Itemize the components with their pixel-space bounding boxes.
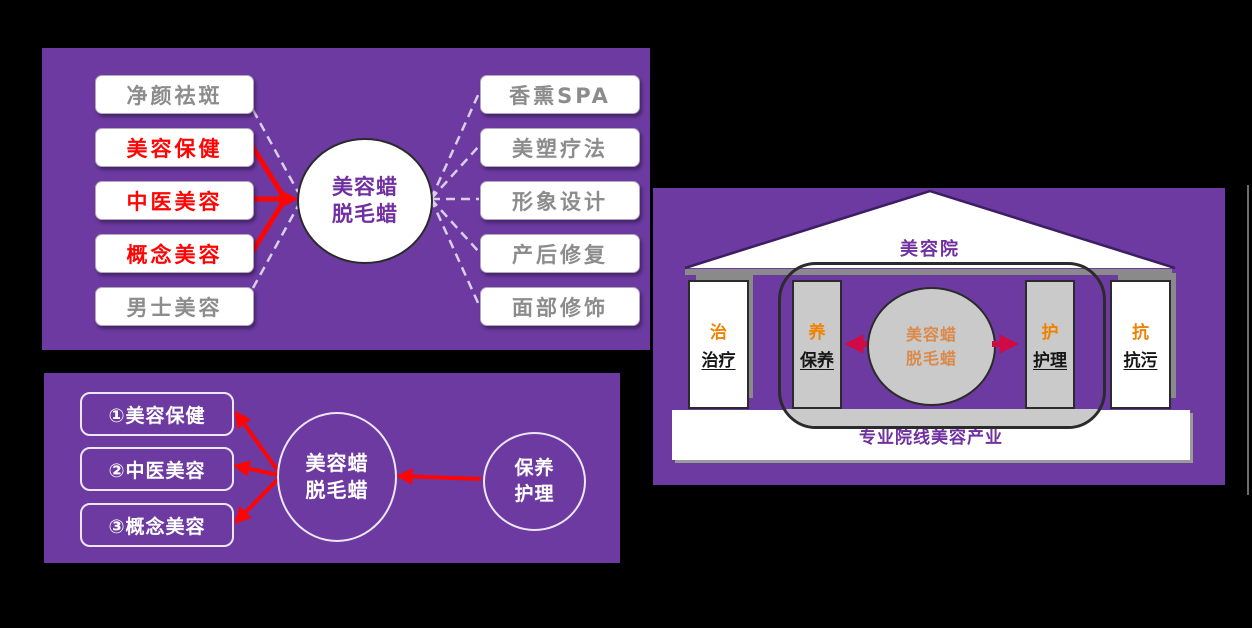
center-node-line2: 脱毛蜡 — [906, 347, 957, 371]
pillar-word: 治疗 — [702, 346, 736, 371]
app-item-nanshimeirong: 男士美容 — [95, 287, 254, 326]
roof-label: 美容院 — [830, 235, 1030, 261]
pillar-antifouling: 抗 抗污 — [1110, 280, 1171, 409]
app-item-chanhou: 产后修复 — [480, 234, 640, 273]
support-node-care: 保养 护理 — [483, 432, 586, 531]
center-node-line2: 脱毛蜡 — [306, 477, 369, 504]
priority-item-2: ②中医美容 — [80, 447, 234, 491]
slide-canvas: 净颜祛斑 美容保健 中医美容 概念美容 男士美容 美容蜡 脱毛蜡 香熏SPA 美… — [0, 0, 1252, 628]
pillar-initial: 治 — [710, 318, 727, 343]
app-item-mianbu: 面部修饰 — [480, 287, 640, 326]
center-node-product: 美容蜡 脱毛蜡 — [297, 138, 433, 264]
app-item-spa: 香熏SPA — [480, 75, 640, 114]
app-item-xingxiang: 形象设计 — [480, 181, 640, 220]
pillar-maintain: 养 保养 — [792, 280, 842, 409]
app-item-meisu: 美塑疗法 — [480, 128, 640, 167]
red-arrowhead — [279, 189, 298, 209]
screen-edge-line — [1247, 185, 1249, 495]
app-item-zhongyimeirong: 中医美容 — [95, 181, 254, 220]
pillar-care: 护 护理 — [1025, 280, 1075, 409]
red-arrows — [252, 146, 282, 252]
inner-frame-base — [781, 409, 1103, 426]
panel-temple-industry: 美容院 专业院线美容产业 治 治疗 养 保养 护 护理 抗 抗污 美容蜡 脱毛蜡 — [653, 188, 1225, 485]
pillar-initial: 护 — [1042, 318, 1059, 343]
pillar-treatment: 治 治疗 — [688, 280, 749, 409]
center-node-line2: 脱毛蜡 — [332, 201, 398, 228]
panel-applications-map: 净颜祛斑 美容保健 中医美容 概念美容 男士美容 美容蜡 脱毛蜡 香熏SPA 美… — [42, 48, 650, 350]
support-node-line2: 护理 — [514, 482, 554, 508]
priority-item-3: ③概念美容 — [80, 503, 234, 547]
center-node-line1: 美容蜡 — [906, 323, 957, 347]
pillar-word: 护理 — [1033, 346, 1067, 371]
center-node-line1: 美容蜡 — [306, 450, 369, 477]
pillar-word: 保养 — [800, 346, 834, 371]
center-node-product: 美容蜡 脱毛蜡 — [277, 412, 397, 542]
priority-item-1: ①美容保健 — [80, 392, 234, 436]
center-node-product: 美容蜡 脱毛蜡 — [867, 287, 996, 406]
center-node-line1: 美容蜡 — [332, 174, 398, 201]
pillar-initial: 养 — [809, 318, 826, 343]
app-item-jingyan: 净颜祛斑 — [95, 75, 254, 114]
pillar-word: 抗污 — [1124, 346, 1158, 371]
pillar-initial: 抗 — [1132, 318, 1149, 343]
app-item-meirongbaojian: 美容保健 — [95, 128, 254, 167]
app-item-gainianmeirong: 概念美容 — [95, 234, 254, 273]
panel-priority-map: ①美容保健 ②中医美容 ③概念美容 美容蜡 脱毛蜡 保养 护理 — [44, 373, 620, 563]
support-node-line1: 保养 — [514, 456, 554, 482]
